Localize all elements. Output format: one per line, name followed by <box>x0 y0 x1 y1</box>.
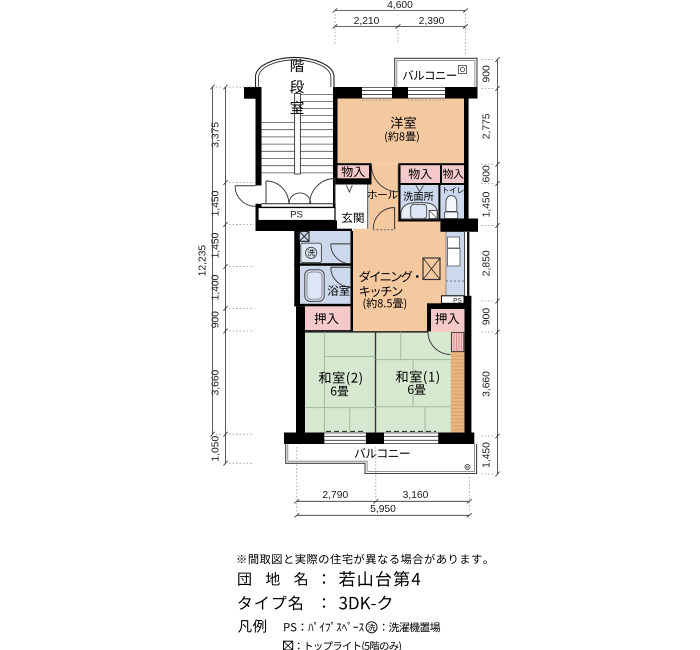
svg-text:12,235: 12,235 <box>198 245 209 277</box>
svg-text:2,775: 2,775 <box>482 113 493 139</box>
svg-text:1,050: 1,050 <box>211 436 222 462</box>
svg-text:3,660: 3,660 <box>482 371 493 397</box>
svg-text:4,600: 4,600 <box>387 0 413 11</box>
svg-text:900: 900 <box>482 65 493 82</box>
svg-text:2,850: 2,850 <box>482 250 493 276</box>
svg-text:PS: PS <box>290 209 303 220</box>
svg-text:2,390: 2,390 <box>419 16 445 27</box>
svg-text:3,160: 3,160 <box>403 490 429 501</box>
svg-text:PS: PS <box>453 297 462 304</box>
svg-text:900: 900 <box>482 308 493 325</box>
svg-text:1,450: 1,450 <box>482 442 493 468</box>
svg-text:1,450: 1,450 <box>482 191 493 217</box>
svg-text:5,950: 5,950 <box>370 504 396 515</box>
svg-text:2,210: 2,210 <box>354 16 380 27</box>
svg-text:2,790: 2,790 <box>322 490 348 501</box>
svg-text:600: 600 <box>482 165 493 182</box>
